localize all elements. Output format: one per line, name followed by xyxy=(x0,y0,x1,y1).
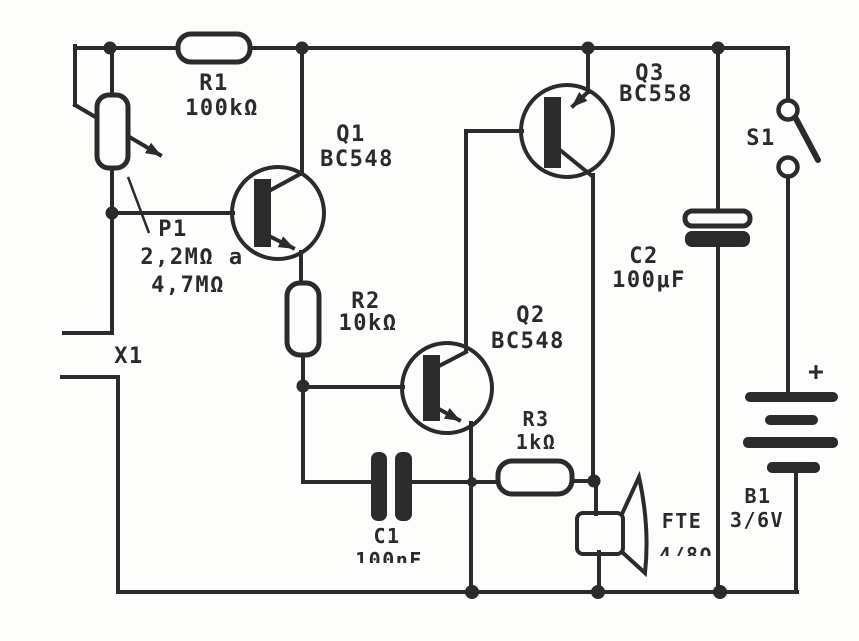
label-p1-value2: 4,7MΩ xyxy=(151,273,225,298)
resistor-r3 xyxy=(498,461,594,494)
label-p1-ref: P1 xyxy=(158,217,188,242)
transistor-q2 xyxy=(303,131,522,592)
s1-bottom-contact xyxy=(779,158,798,177)
p1-body xyxy=(97,95,128,168)
resistor-r1 xyxy=(178,34,250,62)
label-fte-ref: FTE xyxy=(662,509,703,533)
label-b1-value: 3/6V xyxy=(730,508,784,532)
label-x1-ref: X1 xyxy=(114,344,144,369)
b1-plate-long-1 xyxy=(745,392,838,402)
label-b1-ref: B1 xyxy=(744,484,771,508)
q3-collector xyxy=(560,150,593,482)
label-p1-value1: 2,2MΩ a xyxy=(140,245,243,270)
q1-circle xyxy=(232,167,324,259)
s1-lever xyxy=(794,115,818,160)
potentiometer-p1 xyxy=(75,46,160,233)
r3-body xyxy=(498,461,572,494)
terminal-x1 xyxy=(64,213,112,333)
fte-cone xyxy=(622,477,647,573)
label-q3-part: BC558 xyxy=(619,82,693,107)
q1-base-bar xyxy=(254,179,271,247)
label-r2-value: 10kΩ xyxy=(339,311,398,336)
fte-coil-box xyxy=(577,513,623,554)
label-q1-ref: Q1 xyxy=(336,122,366,147)
label-r3-ref: R3 xyxy=(522,407,549,431)
x1-upper-lead xyxy=(64,213,112,333)
circuit-canvas: R1 100kΩ P1 2,2MΩ a 4,7MΩ X1 Q1 BC548 Q3… xyxy=(0,0,859,641)
label-fte-value-clipped: 4/8Ω xyxy=(659,543,713,567)
c2-top-plate xyxy=(685,211,750,226)
schematic-figure: R1 100kΩ P1 2,2MΩ a 4,7MΩ X1 Q1 BC548 Q3… xyxy=(0,0,859,641)
label-r1-ref: R1 xyxy=(199,71,229,96)
q2-base-bar xyxy=(423,355,440,421)
q2-emitter-arrow xyxy=(437,408,459,420)
label-c2-value: 100μF xyxy=(612,268,686,293)
b1-plate-short-1 xyxy=(765,415,818,425)
label-q2-ref: Q2 xyxy=(516,303,546,328)
c1-right-plate xyxy=(395,452,412,521)
label-q2-part: BC548 xyxy=(491,329,565,354)
q3-circle xyxy=(521,85,613,177)
switch-s1 xyxy=(779,48,819,393)
r2-body xyxy=(287,283,319,355)
label-c1-value-clipped: 100nF xyxy=(355,548,423,572)
label-r3-value: 1kΩ xyxy=(516,430,557,454)
q3-base-bar xyxy=(544,97,561,168)
p1-leader-line xyxy=(128,177,149,233)
b1-plate-short-2 xyxy=(767,462,820,473)
q3-emitter-arrow xyxy=(573,92,588,106)
r1-body xyxy=(178,34,250,62)
r2-lower-wire xyxy=(303,355,372,482)
label-q1-part: BC548 xyxy=(320,147,394,172)
label-s1-ref: S1 xyxy=(746,126,776,151)
s1-top-contact xyxy=(779,101,798,120)
label-r1-value: 100kΩ xyxy=(185,96,259,121)
c1-left-plate xyxy=(371,452,387,521)
c2-bottom-plate xyxy=(685,231,750,247)
junction-dots xyxy=(104,42,728,600)
capacitor-c1 xyxy=(371,452,498,521)
b1-plate-long-2 xyxy=(743,437,838,448)
speaker-fte xyxy=(577,477,647,592)
q2-circle xyxy=(402,343,492,433)
label-c1-ref: C1 xyxy=(373,524,400,548)
label-b1-polarity: + xyxy=(808,357,824,387)
label-c2-ref: C2 xyxy=(629,244,659,269)
